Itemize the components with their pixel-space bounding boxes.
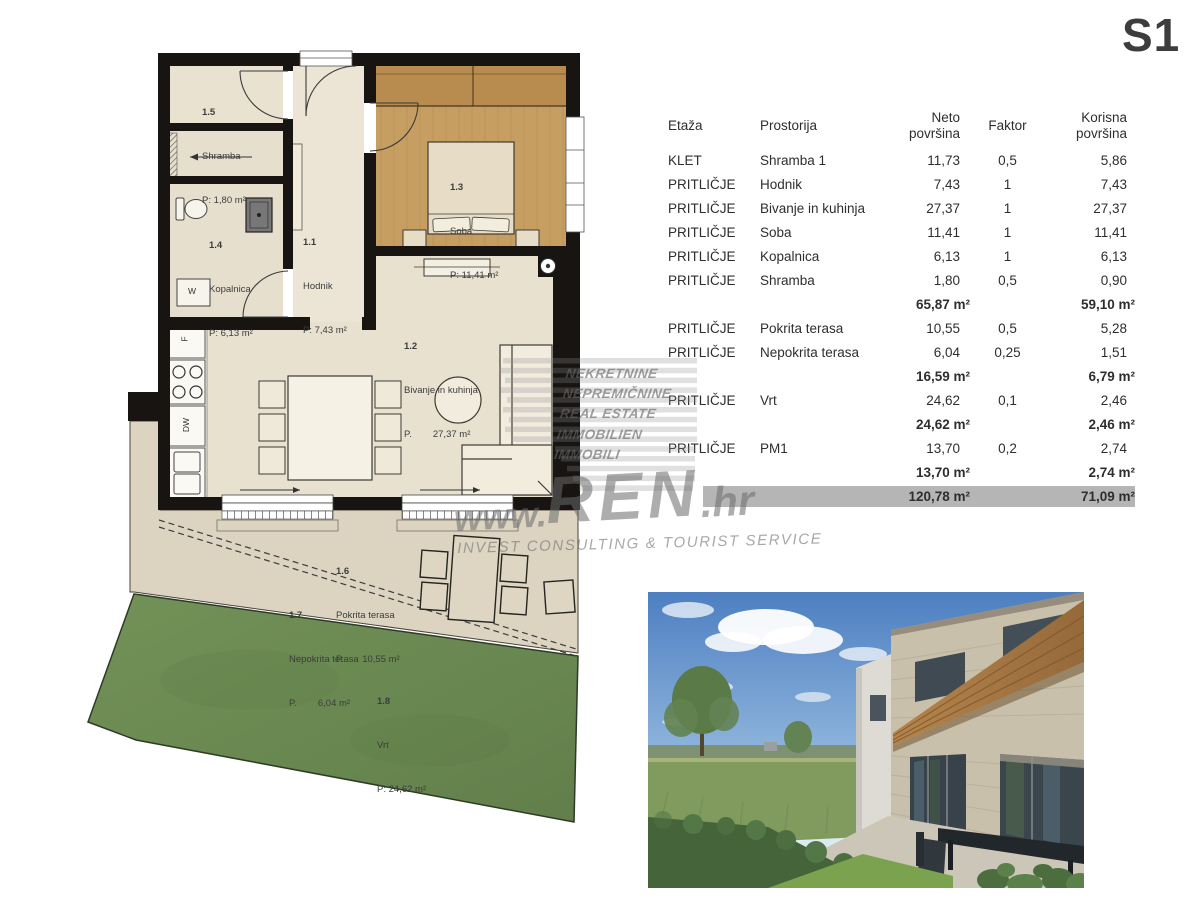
table-row-subtotal: 24,62 m²2,46 m² [665,412,1135,436]
room-number: 1.8 [377,695,426,710]
cell-neto: 7,43 [900,177,970,192]
room-name: Soba [450,225,498,240]
room-label-hodnik: 1.1 Hodnik P: 7,43 m² [303,207,347,368]
cell-korisna: 5,86 [1045,153,1135,168]
cell-korisna: 59,10 m² [1045,297,1135,312]
cell-etaza: PRITLIČJE [665,345,760,360]
cell-prostorija: Shramba 1 [760,153,900,168]
header-prostorija: Prostorija [760,118,900,134]
cell-korisna: 0,90 [1045,273,1135,288]
header-korisna-povrsina: Korisna površina [1045,110,1135,143]
room-area: P. 6,04 m² [289,697,359,712]
room-name: Kopalnica [209,283,253,298]
cell-korisna: 2,74 [1045,441,1135,456]
table-row-data: PRITLIČJEPokrita terasa10,550,55,28 [665,316,1135,340]
cell-faktor: 1 [970,201,1045,216]
room-name: Nepokrita terasa [289,653,359,668]
cell-faktor: 1 [970,225,1045,240]
washer-label: W [188,286,196,296]
small-tree [784,721,812,753]
cell-prostorija: PM1 [760,441,900,456]
table-row-data: KLETShramba 111,730,55,86 [665,148,1135,172]
area-table: Etaža Prostorija Neto površina Faktor Ko… [665,104,1135,507]
cell-neto: 11,73 [900,153,970,168]
cell-faktor: 0,5 [970,321,1045,336]
room-number: 1.4 [209,239,253,254]
table-row-data: PRITLIČJEShramba1,800,50,90 [665,268,1135,292]
table-row-data: PRITLIČJEKopalnica6,1316,13 [665,244,1135,268]
cell-neto: 1,80 [900,273,970,288]
cell-prostorija: Hodnik [760,177,900,192]
table-row-data: PRITLIČJEHodnik7,4317,43 [665,172,1135,196]
cell-neto: 13,70 [900,441,970,456]
cell-faktor: 0,5 [970,273,1045,288]
table-row-data: PRITLIČJENepokrita terasa6,040,251,51 [665,340,1135,364]
header-etaza: Etaža [665,118,760,134]
cell-korisna: 6,79 m² [1045,369,1135,384]
room-number: 1.5 [202,106,246,121]
cell-korisna: 5,28 [1045,321,1135,336]
room-area: P: 1,80 m² [202,194,246,209]
cell-faktor: 1 [970,249,1045,264]
unit-label: S1 [1122,8,1180,62]
cell-korisna: 2,46 m² [1045,417,1135,432]
room-name: Shramba [202,150,246,165]
cell-korisna: 6,13 [1045,249,1135,264]
cell-etaza: PRITLIČJE [665,393,760,408]
cell-etaza: PRITLIČJE [665,201,760,216]
brochure-page: S1 [0,0,1200,912]
cell-neto: 6,13 [900,249,970,264]
room-number: 1.3 [450,181,498,196]
cell-etaza: KLET [665,153,760,168]
table-row-data: PRITLIČJEPM113,700,22,74 [665,436,1135,460]
window-soba-right [566,117,584,232]
wall-stub [128,392,162,421]
cell-prostorija: Kopalnica [760,249,900,264]
room-label-soba: 1.3 Soba P: 11,41 m² [450,152,498,313]
cell-prostorija: Pokrita terasa [760,321,900,336]
cell-neto: 24,62 [900,393,970,408]
cell-etaza: PRITLIČJE [665,273,760,288]
wall-lamp-dot [546,264,550,268]
cell-faktor: 0,25 [970,345,1045,360]
table-row-subtotal: 16,59 m²6,79 m² [665,364,1135,388]
cell-etaza: PRITLIČJE [665,225,760,240]
room-number: 1.2 [404,340,478,355]
wardrobe [374,64,572,106]
cell-korisna: 27,37 [1045,201,1135,216]
cell-korisna: 2,74 m² [1045,465,1135,480]
house-white-wall [856,654,891,832]
cell-neto: 13,70 m² [900,465,970,480]
cell-prostorija: Nepokrita terasa [760,345,900,360]
room-name: Bivanje in kuhinja [404,384,478,399]
cell-neto: 10,55 [900,321,970,336]
cell-faktor: 0,2 [970,441,1045,456]
table-row-data: PRITLIČJEBivanje in kuhinja27,37127,37 [665,196,1135,220]
cell-neto: 6,04 [900,345,970,360]
cell-etaza: PRITLIČJE [665,441,760,456]
cell-korisna: 1,51 [1045,345,1135,360]
cell-korisna: 2,46 [1045,393,1135,408]
room-name: Vrt [377,739,426,754]
header-faktor: Faktor [970,118,1045,134]
kitchen-counter [167,320,207,500]
room-label-living: 1.2 Bivanje in kuhinja P. 27,37 m² [404,311,478,472]
dining-table [288,376,372,480]
cell-neto: 11,41 [900,225,970,240]
cell-korisna: 71,09 m² [1045,489,1135,504]
room-area: P: 24,62 m² [377,783,426,798]
cell-prostorija: Bivanje in kuhinja [760,201,900,216]
table-row-data: PRITLIČJESoba11,41111,41 [665,220,1135,244]
property-photo [648,592,1084,888]
cell-neto: 24,62 m² [900,417,970,432]
room-area: P. 27,37 m² [404,428,478,443]
room-number: 1.6 [336,565,400,580]
cell-neto: 65,87 m² [900,297,970,312]
room-number: 1.7 [289,609,359,624]
cell-etaza: PRITLIČJE [665,321,760,336]
dishwasher-label: DW [181,418,191,432]
header-neto-povrsina: Neto površina [900,110,970,143]
cell-neto: 27,37 [900,201,970,216]
room-area: P: 7,43 m² [303,324,347,339]
cell-korisna: 7,43 [1045,177,1135,192]
table-row-data: PRITLIČJEVrt24,620,12,46 [665,388,1135,412]
table-row-subtotal: 13,70 m²2,74 m² [665,460,1135,484]
cell-faktor: 0,5 [970,153,1045,168]
cell-prostorija: Shramba [760,273,900,288]
fridge-label: F [180,336,190,341]
room-label-vrt: 1.8 Vrt P: 24,62 m² [377,666,426,827]
cell-korisna: 11,41 [1045,225,1135,240]
room-name: Hodnik [303,280,347,295]
garden-texture [350,714,510,766]
distant-building [764,742,777,751]
room-area: P: 11,41 m² [450,269,498,284]
cell-prostorija: Soba [760,225,900,240]
cell-etaza: PRITLIČJE [665,177,760,192]
table-header: Etaža Prostorija Neto površina Faktor Ko… [665,104,1135,148]
cell-neto: 16,59 m² [900,369,970,384]
table-row-total: 120,78 m²71,09 m² [665,486,1135,507]
table-body: KLETShramba 111,730,55,86PRITLIČJEHodnik… [665,148,1135,507]
cell-faktor: 0,1 [970,393,1045,408]
room-number: 1.1 [303,236,347,251]
cell-prostorija: Vrt [760,393,900,408]
room-label-kopalnica: 1.4 Kopalnica P: 6,13 m² [209,210,253,371]
cell-faktor: 1 [970,177,1045,192]
cell-neto: 120,78 m² [900,489,970,504]
room-area: P: 6,13 m² [209,327,253,342]
table-row-subtotal: 65,87 m²59,10 m² [665,292,1135,316]
cell-etaza: PRITLIČJE [665,249,760,264]
room-label-nepokrita-terasa: 1.7 Nepokrita terasa P. 6,04 m² [289,580,359,741]
